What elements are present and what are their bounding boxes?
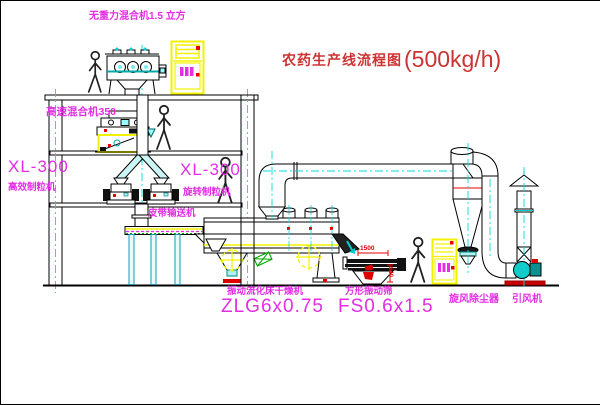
label-granulator-model-right: XL-300 [180,161,241,178]
control-cabinet-1 [172,42,204,94]
label-fan: 引风机 [512,295,542,305]
status-light-icon [196,46,200,50]
cyclone-downpipe [482,176,506,278]
label-sieve-model: FS0.6x1.5 [338,297,434,316]
dimension-length: 1500 [360,246,374,253]
label-granulator-left: 高效制粒机 [8,183,56,193]
granulator-right [143,184,179,204]
person-figure [411,238,424,282]
vibrating-sieve [343,257,406,284]
label-dryer-model: ZLG6x0.75 [221,297,324,316]
title-chinese: 农药生产线流程图 [282,53,402,67]
fluid-bed-dryer [204,205,359,283]
label-belt-conveyor: 皮带输送机 [148,209,196,219]
gravity-free-mixer [105,48,166,96]
status-light-icon [450,241,454,245]
label-granulator-model-left: XL-300 [8,158,69,175]
label-top-mixer: 无重力混合机1.5 立方 [89,12,186,22]
label-granulator-right: 旋转制粒机 [183,188,231,198]
induced-draft-fan [505,259,545,285]
dimension-height: 540 [387,267,393,277]
title-capacity: (500kg/h) [404,48,501,71]
label-high-speed-mixer: 高速混合机350 [46,107,116,118]
page-title: 农药生产线流程图 (500kg/h) [282,48,501,71]
person-figure [157,106,170,149]
control-cabinet-2 [433,240,457,284]
process-flow-diagram: 无重力混合机1.5 立方 农药生产线流程图 (500kg/h) 高速混合机350… [0,0,600,405]
label-cyclone: 旋风除尘器 [449,295,499,305]
person-figure [89,52,101,92]
belt-conveyor [125,227,215,285]
granulator-left [103,184,139,204]
guard-box-icon [254,252,272,266]
